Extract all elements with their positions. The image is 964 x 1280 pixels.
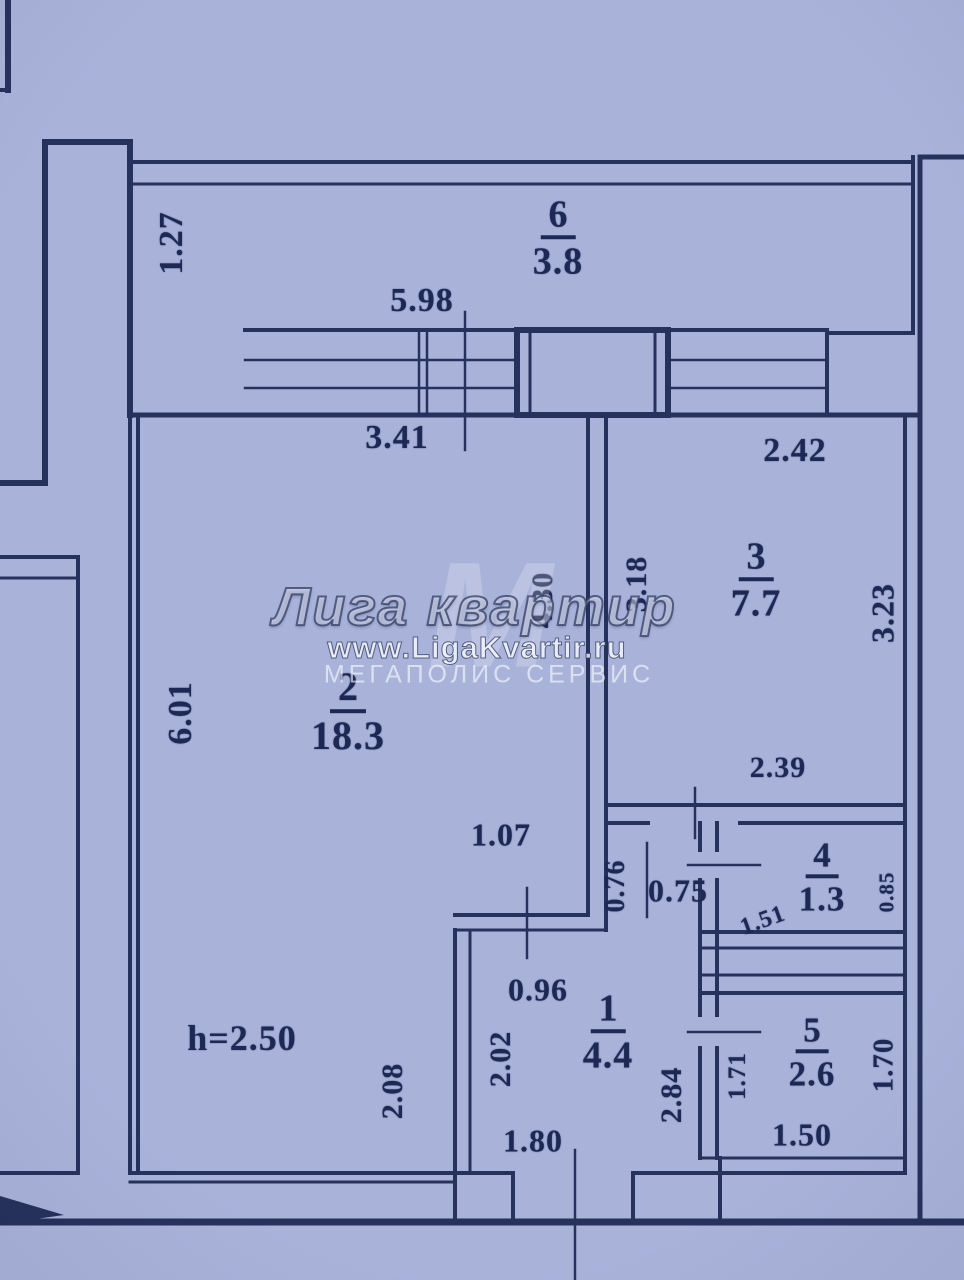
room-number: 1 <box>591 989 626 1033</box>
dim-2-84: 2.84 <box>655 1067 689 1124</box>
room-number: 5 <box>795 1012 829 1053</box>
room-label-bathroom: 5 2.6 <box>789 1012 836 1091</box>
dim-5-98: 5.98 <box>390 282 454 320</box>
room-area: 3.8 <box>533 239 584 281</box>
dim-1-80: 1.80 <box>503 1123 563 1160</box>
ceiling-height-label: h=2.50 <box>187 1017 297 1059</box>
room-label-wc: 4 1.3 <box>799 837 846 916</box>
dim-2-08: 2.08 <box>376 1063 410 1120</box>
dim-0-96: 0.96 <box>508 972 568 1009</box>
room-area: 7.7 <box>731 581 782 623</box>
dim-3-23: 3.23 <box>865 583 902 643</box>
dim-1-70: 1.70 <box>868 1038 901 1093</box>
dim-2-02: 2.02 <box>484 1031 518 1088</box>
room-number: 6 <box>541 195 576 239</box>
room-number: 3 <box>739 537 774 581</box>
dim-1-71: 1.71 <box>724 1052 752 1100</box>
room-label-balcony: 6 3.8 <box>533 195 584 281</box>
dim-1-27: 1.27 <box>153 211 191 275</box>
dim-0-85: 0.85 <box>875 872 900 913</box>
dim-0-75: 0.75 <box>648 873 708 910</box>
room-area: 18.3 <box>311 713 385 757</box>
dim-2-39: 2.39 <box>750 751 807 785</box>
room-area: 2.6 <box>789 1053 836 1092</box>
dim-0-76: 0.76 <box>600 860 632 913</box>
room-label-hall: 1 4.4 <box>583 989 634 1075</box>
watermark-subtitle: МЕГАПОЛИС СЕРВИС <box>324 661 654 690</box>
dim-3-41: 3.41 <box>365 419 429 457</box>
dim-6-01: 6.01 <box>162 681 200 745</box>
dim-2-42: 2.42 <box>763 432 827 470</box>
floor-plan-photo: 6 3.8 2 18.3 3 7.7 4 1.3 5 2.6 1 4.4 1.2… <box>0 0 964 1280</box>
room-label-kitchen: 3 7.7 <box>731 537 782 623</box>
dim-1-07: 1.07 <box>471 817 531 854</box>
room-area: 1.3 <box>799 878 846 917</box>
dim-1-50: 1.50 <box>772 1117 832 1154</box>
watermark-title: Лига квартир <box>273 576 677 638</box>
room-number: 4 <box>805 837 839 878</box>
room-area: 4.4 <box>583 1033 634 1075</box>
